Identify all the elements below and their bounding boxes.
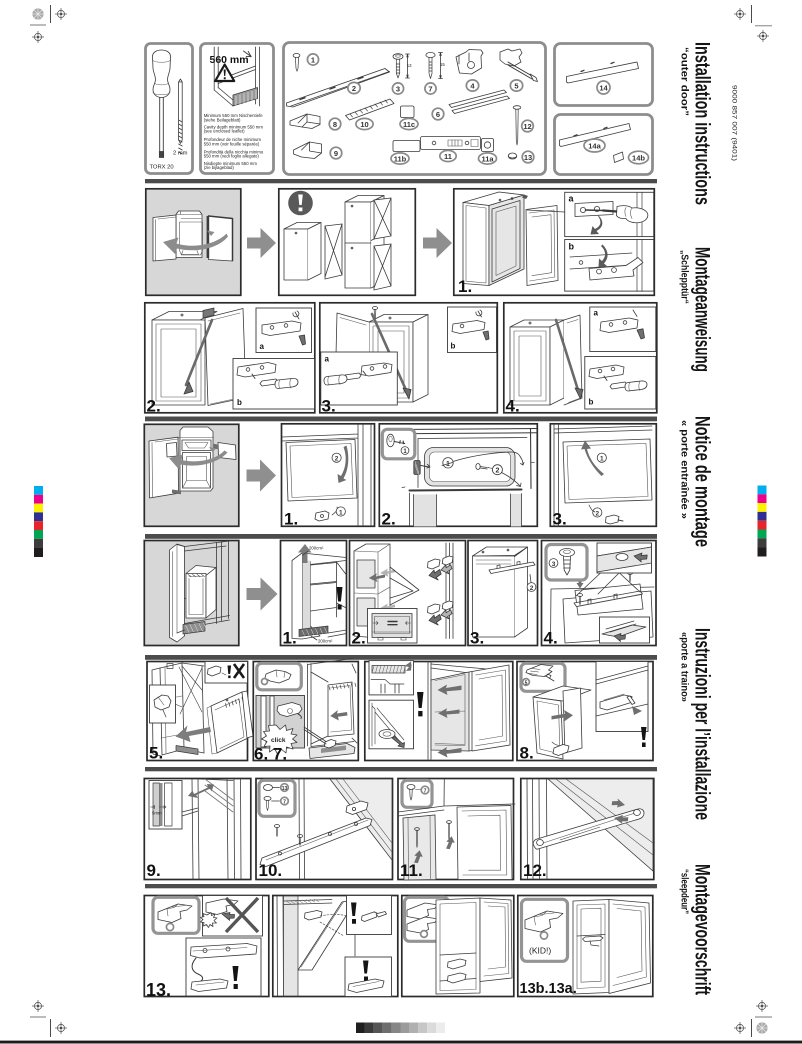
svg-text:5: 5 bbox=[514, 81, 518, 90]
svg-text:1: 1 bbox=[600, 456, 604, 463]
svg-text:14a: 14a bbox=[588, 141, 601, 150]
svg-text:1: 1 bbox=[311, 55, 315, 64]
svg-text:2: 2 bbox=[495, 468, 499, 475]
svg-text:1: 1 bbox=[339, 509, 343, 516]
svg-text:b: b bbox=[237, 398, 242, 407]
svg-text:click: click bbox=[271, 737, 286, 744]
svg-text:Montageanweisung: Montageanweisung bbox=[691, 247, 714, 372]
svg-text:(KID!): (KID!) bbox=[529, 946, 551, 956]
svg-text:a: a bbox=[594, 309, 599, 318]
svg-text:Montagevoorschrift: Montagevoorschrift bbox=[691, 864, 714, 995]
svg-text:13: 13 bbox=[282, 786, 288, 792]
svg-text:9: 9 bbox=[334, 149, 338, 158]
svg-text:2: 2 bbox=[530, 585, 534, 592]
svg-text:« porte entraînée »: « porte entraînée » bbox=[679, 420, 691, 519]
svg-text:1.: 1. bbox=[283, 629, 297, 648]
svg-text:2.: 2. bbox=[352, 629, 366, 648]
svg-text:8.: 8. bbox=[520, 744, 534, 763]
svg-text:3: 3 bbox=[552, 561, 556, 568]
svg-text:11.: 11. bbox=[400, 861, 423, 880]
svg-text:4.: 4. bbox=[544, 629, 558, 648]
svg-text:4.: 4. bbox=[506, 397, 520, 416]
svg-text:12: 12 bbox=[523, 122, 531, 131]
svg-text:13: 13 bbox=[407, 63, 412, 68]
svg-text:(siehe Beilageblatt): (siehe Beilageblatt) bbox=[204, 117, 241, 122]
svg-text:a: a bbox=[260, 342, 265, 351]
svg-text:b: b bbox=[569, 242, 575, 252]
svg-text:7: 7 bbox=[424, 789, 427, 795]
svg-text:14b: 14b bbox=[632, 153, 645, 162]
svg-text:200cm²: 200cm² bbox=[309, 546, 324, 551]
svg-text:5: 5 bbox=[525, 681, 528, 687]
svg-text:b: b bbox=[589, 398, 594, 407]
svg-text:3.: 3. bbox=[322, 397, 336, 416]
svg-text:11c: 11c bbox=[403, 120, 415, 129]
svg-text:13.: 13. bbox=[146, 980, 171, 1000]
svg-text:11b: 11b bbox=[394, 154, 407, 163]
svg-text:2: 2 bbox=[352, 84, 356, 93]
svg-text:200cm²: 200cm² bbox=[318, 639, 333, 644]
svg-text:550 mm (vedi foglio allegato): 550 mm (vedi foglio allegato) bbox=[204, 154, 260, 159]
svg-text:2.: 2. bbox=[382, 510, 396, 529]
svg-text:„Schlepptür“: „Schlepptür“ bbox=[679, 250, 691, 304]
svg-text:2: 2 bbox=[595, 510, 599, 517]
svg-text:3.: 3. bbox=[553, 510, 567, 529]
svg-text:6. 7.: 6. 7. bbox=[254, 745, 287, 764]
svg-text:11a: 11a bbox=[481, 154, 494, 163]
svg-text:a: a bbox=[325, 355, 330, 364]
svg-text:“sleepdeur”: “sleepdeur” bbox=[679, 869, 691, 914]
svg-text:12.: 12. bbox=[523, 861, 547, 880]
svg-text:550 mm (voir feuille séparée): 550 mm (voir feuille séparée) bbox=[204, 141, 260, 146]
svg-text:“outer door”: “outer door” bbox=[679, 47, 691, 116]
svg-text:9000 857 007 (9401): 9000 857 007 (9401) bbox=[731, 85, 738, 161]
svg-text:13: 13 bbox=[524, 153, 532, 162]
svg-text:9.: 9. bbox=[147, 861, 161, 880]
svg-text:1.: 1. bbox=[458, 277, 472, 296]
svg-text:TORX 20: TORX 20 bbox=[150, 165, 174, 171]
svg-text:3: 3 bbox=[396, 84, 400, 93]
svg-text:5mm: 5mm bbox=[152, 811, 162, 816]
svg-text:10.: 10. bbox=[259, 861, 283, 880]
svg-text:3.: 3. bbox=[470, 629, 484, 648]
svg-text:Instruzioni per l’installazion: Instruzioni per l’installazione bbox=[691, 628, 714, 820]
svg-text:6: 6 bbox=[436, 110, 440, 119]
svg-text:14: 14 bbox=[599, 83, 608, 92]
svg-text:13b.13a.: 13b.13a. bbox=[520, 981, 577, 997]
svg-text:Notice de montage: Notice de montage bbox=[691, 416, 714, 547]
svg-text:7: 7 bbox=[428, 84, 432, 93]
svg-text:2.: 2. bbox=[147, 397, 161, 416]
svg-text:Installation instructions: Installation instructions bbox=[691, 42, 714, 205]
svg-text:«porte a traino»: «porte a traino» bbox=[679, 632, 691, 702]
svg-text:1.: 1. bbox=[284, 510, 298, 529]
svg-text:10: 10 bbox=[360, 120, 368, 129]
svg-text:5.: 5. bbox=[149, 744, 163, 763]
svg-text:11: 11 bbox=[444, 152, 452, 161]
svg-text:15: 15 bbox=[440, 62, 445, 67]
svg-text:2: 2 bbox=[335, 456, 339, 463]
svg-text:(zie bijlageblad): (zie bijlageblad) bbox=[204, 165, 235, 170]
svg-text:(see enclosed leaflet): (see enclosed leaflet) bbox=[204, 129, 245, 134]
svg-text:7: 7 bbox=[283, 800, 286, 806]
svg-text:2 mm: 2 mm bbox=[173, 151, 188, 157]
svg-text:8: 8 bbox=[333, 120, 337, 129]
svg-text:560 mm: 560 mm bbox=[210, 54, 249, 66]
svg-text:b: b bbox=[451, 342, 456, 351]
